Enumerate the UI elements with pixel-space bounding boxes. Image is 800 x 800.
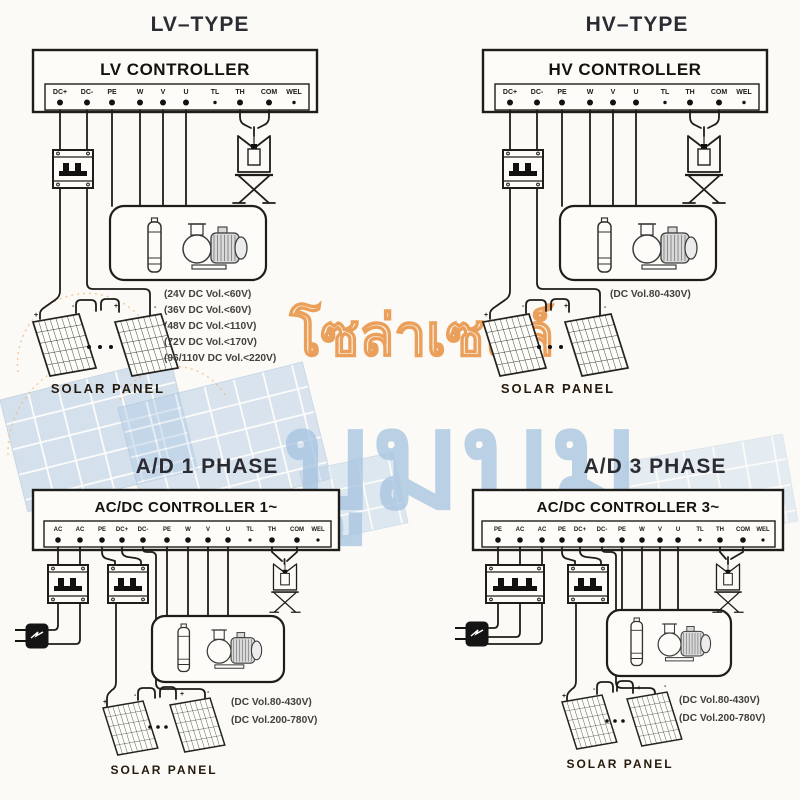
scanned-wiring-diagram-page: โซล่าเซลล์ บูมบูม LV–TYPE LV CONTROLLER …	[0, 0, 800, 800]
lv-section: LV–TYPE LV CONTROLLER DC+ DC- PE W V U T…	[33, 13, 317, 396]
spec-line: (DC Vol.80-430V)	[610, 289, 691, 300]
float-switch-tank-icon	[233, 136, 275, 203]
minus-mark: -	[664, 683, 667, 690]
spec-line: (36V DC Vol.<60V)	[164, 305, 251, 316]
minus-mark: -	[604, 304, 607, 311]
terminal-label: DC-	[531, 89, 544, 96]
terminal-label: TL	[211, 89, 220, 96]
minus-mark: -	[72, 303, 75, 310]
minus-mark: -	[207, 689, 210, 696]
terminal-label: TH	[268, 527, 276, 533]
section-title-ad3: A/D 3 PHASE	[584, 455, 727, 478]
solar-panel-label: SOLAR PANEL	[501, 381, 615, 396]
series-dots	[605, 719, 625, 723]
solar-panel-icon	[170, 698, 225, 752]
voltage-specs: (DC Vol.80-430V)	[610, 289, 691, 300]
solar-panel-icon	[627, 692, 682, 746]
minus-mark: -	[593, 686, 596, 693]
spec-line: (DC Vol.80-430V)	[679, 695, 760, 706]
terminal-label: W	[137, 89, 144, 96]
dc-breaker-icon	[108, 565, 148, 603]
terminal-label: TL	[696, 527, 704, 533]
plus-mark: +	[484, 312, 488, 319]
terminal-label: DC+	[116, 527, 129, 533]
terminal-label: DC+	[53, 89, 67, 96]
terminal-label: V	[161, 89, 166, 96]
terminal-label: W	[587, 89, 594, 96]
ad3-section: A/D 3 PHASE AC/DC CONTROLLER 3~ PE AC AC…	[455, 455, 783, 771]
terminal-label: WEL	[311, 527, 325, 533]
plus-mark: +	[180, 691, 184, 698]
plus-mark: +	[34, 312, 38, 319]
terminal-label: PE	[618, 527, 626, 533]
spec-line: (DC Vol.200-780V)	[679, 713, 765, 724]
terminal-label: TL	[661, 89, 670, 96]
terminal-label: W	[185, 527, 191, 533]
spec-line: (96/110V DC Vol.<220V)	[164, 353, 276, 364]
terminal-label: PE	[557, 89, 567, 96]
terminal-label: V	[658, 527, 662, 533]
terminal-label: PE	[98, 527, 106, 533]
controller-title: AC/DC CONTROLLER 1~	[95, 499, 278, 516]
terminal-label: U	[226, 527, 230, 533]
section-title-hv: HV–TYPE	[586, 13, 689, 36]
spec-line: (DC Vol.80-430V)	[231, 697, 312, 708]
terminal-label: TH	[685, 89, 694, 96]
section-title-ad1: A/D 1 PHASE	[136, 455, 279, 478]
controller-title: AC/DC CONTROLLER 3~	[537, 499, 720, 516]
terminal-label: DC+	[503, 89, 517, 96]
plus-mark: +	[562, 693, 566, 700]
terminal-label: PE	[494, 527, 502, 533]
terminal-label: COM	[290, 527, 304, 533]
terminal-label: V	[611, 89, 616, 96]
terminal-label: U	[633, 89, 638, 96]
ac-plug-icon	[15, 624, 48, 648]
voltage-specs: (DC Vol.80-430V) (DC Vol.200-780V)	[679, 695, 765, 724]
voltage-specs: (DC Vol.80-430V) (DC Vol.200-780V)	[231, 697, 317, 726]
controller-title: LV CONTROLLER	[100, 60, 250, 79]
submersible-pump-icon	[178, 624, 189, 672]
dc-breaker-icon	[568, 565, 608, 603]
solar-panel-label: SOLAR PANEL	[51, 381, 165, 396]
minus-mark: -	[134, 692, 137, 699]
minus-mark: -	[154, 304, 157, 311]
plus-mark: +	[114, 303, 118, 310]
ac-plug-icon	[455, 622, 488, 646]
terminal-label: COM	[736, 527, 750, 533]
terminal-label: PE	[107, 89, 117, 96]
terminal-label: WEL	[286, 89, 302, 96]
terminal-label: V	[206, 527, 210, 533]
ac-breaker-icon	[486, 565, 544, 603]
terminal-label: W	[639, 527, 645, 533]
submersible-pump-icon	[631, 618, 642, 666]
spec-line: (72V DC Vol.<170V)	[164, 337, 257, 348]
terminal-label: AC	[516, 527, 525, 533]
series-dots	[148, 725, 168, 729]
plus-mark: +	[564, 303, 568, 310]
terminal-label: U	[183, 89, 188, 96]
spec-line: (DC Vol.200-780V)	[231, 715, 317, 726]
terminal-label: TL	[246, 527, 254, 533]
solar-panel-icon	[565, 314, 628, 376]
terminal-label: COM	[711, 89, 728, 96]
series-dots	[87, 345, 113, 349]
terminal-label: WEL	[756, 527, 770, 533]
submersible-pump-icon	[148, 218, 161, 272]
solar-panel-icon	[33, 314, 96, 376]
terminal-label: AC	[54, 527, 63, 533]
float-switch-tank-icon	[270, 564, 300, 612]
solar-panel-label: SOLAR PANEL	[566, 757, 673, 771]
controller-title: HV CONTROLLER	[549, 60, 702, 79]
terminal-label: DC+	[574, 527, 587, 533]
terminal-label: DC-	[597, 527, 608, 533]
terminal-label: U	[676, 527, 680, 533]
terminal-label: DC-	[138, 527, 149, 533]
terminal-label: PE	[163, 527, 171, 533]
spec-line: (24V DC Vol.<60V)	[164, 289, 251, 300]
voltage-specs: (24V DC Vol.<60V) (36V DC Vol.<60V) (48V…	[164, 289, 276, 364]
hv-section: HV–TYPE HV CONTROLLER DC+ DC- PE W V U T…	[483, 13, 767, 396]
solar-panel-label: SOLAR PANEL	[110, 763, 217, 777]
terminal-label: AC	[538, 527, 547, 533]
plus-mark: +	[103, 699, 107, 706]
section-title-lv: LV–TYPE	[151, 13, 250, 36]
terminal-label: DC-	[81, 89, 94, 96]
terminal-label: PE	[558, 527, 566, 533]
terminal-label: TH	[716, 527, 724, 533]
submersible-pump-icon	[598, 218, 611, 272]
solar-panel-icon	[562, 695, 617, 749]
ac-breaker-icon	[48, 565, 88, 603]
terminal-label: TH	[235, 89, 244, 96]
spec-line: (48V DC Vol.<110V)	[164, 321, 256, 332]
terminal-label: WEL	[736, 89, 752, 96]
ad1-section: A/D 1 PHASE AC/DC CONTROLLER 1~ AC AC PE…	[15, 455, 339, 777]
float-switch-tank-icon	[713, 564, 743, 612]
dc-breaker-icon	[503, 150, 543, 188]
terminal-label: COM	[261, 89, 278, 96]
float-switch-tank-icon	[683, 136, 725, 203]
wiring-diagram-canvas: โซล่าเซลล์ บูมบูม LV–TYPE LV CONTROLLER …	[0, 0, 800, 800]
plus-mark: +	[637, 685, 641, 692]
dc-breaker-icon	[53, 150, 93, 188]
terminal-label: AC	[76, 527, 85, 533]
